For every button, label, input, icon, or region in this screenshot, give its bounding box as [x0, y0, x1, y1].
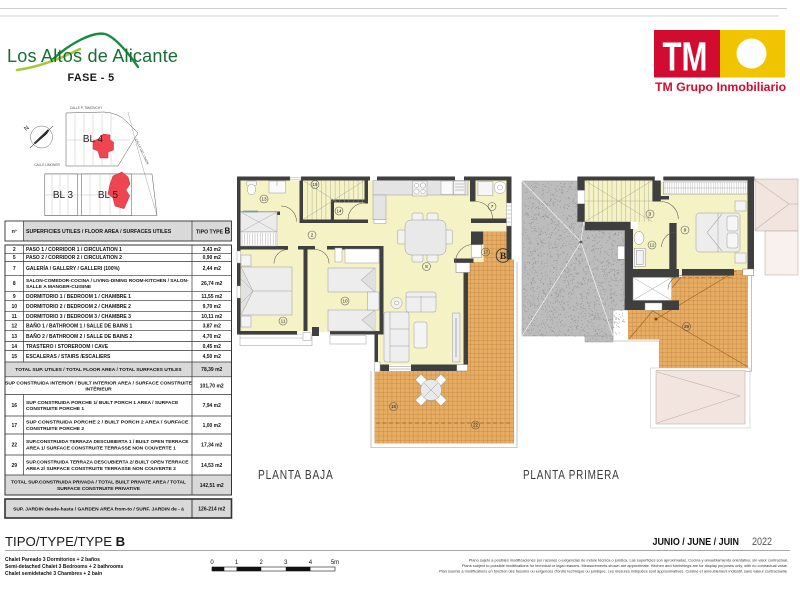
svg-text:BL 5: BL 5	[98, 190, 119, 201]
svg-text:SUP.CONSTRUIDA TERRAZA DESCUB: SUP.CONSTRUIDA TERRAZA DESCUBIERTA 2/ BU…	[26, 460, 189, 466]
svg-text:Plano sujeto a posibles modifi: Plano sujeto a posibles modificaciones p…	[469, 558, 788, 563]
svg-text:TM: TM	[663, 33, 708, 79]
svg-text:5: 5	[13, 255, 16, 261]
svg-text:ESCALERAS / STAIRS /ESCALIERS: ESCALERAS / STAIRS /ESCALIERS	[26, 354, 111, 360]
svg-text:SALLE A MANGER-CUISINE: SALLE A MANGER-CUISINE	[26, 284, 92, 290]
svg-text:14: 14	[11, 344, 17, 350]
svg-text:13: 13	[261, 197, 267, 202]
svg-text:13: 13	[11, 334, 17, 340]
svg-text:SUP.CONSTRUIDA TERRAZA DESCUB: SUP.CONSTRUIDA TERRAZA DESCUBIERTA 1 / B…	[26, 439, 189, 445]
svg-text:SURFACE CONSTRUITE PRIVATIVE: SURFACE CONSTRUITE PRIVATIVE	[57, 486, 141, 492]
svg-text:CALLE P. TAMONCHY: CALLE P. TAMONCHY	[70, 106, 103, 110]
svg-text:AREA 2/ SURFACE CONSTRUITE TE: AREA 2/ SURFACE CONSTRUITE TERRASSE NON …	[26, 466, 176, 472]
svg-text:PLANTA BAJA: PLANTA BAJA	[258, 469, 334, 482]
svg-text:7: 7	[491, 204, 494, 209]
svg-text:PASO 2 / CORRIDOR 2 / CIRCULAT: PASO 2 / CORRIDOR 2 / CIRCULATION 2	[26, 255, 122, 261]
svg-text:4: 4	[309, 560, 313, 566]
svg-text:142,51 m2: 142,51 m2	[200, 483, 224, 489]
svg-text:9,70 m2: 9,70 m2	[203, 304, 222, 310]
svg-text:15: 15	[11, 354, 17, 360]
svg-text:0: 0	[210, 560, 214, 566]
svg-text:TOTAL SUP. UTILES / TOTAL FLOO: TOTAL SUP. UTILES / TOTAL FLOOR AREA / T…	[15, 367, 182, 373]
svg-text:SUP CONSTRUIDA PORCHE 1/ BUILT: SUP CONSTRUIDA PORCHE 1/ BUILT PORCH 1 A…	[26, 400, 179, 406]
svg-text:SUP. JARDIN desde-hasta / GARD: SUP. JARDIN desde-hasta / GARDEN AREA fr…	[13, 507, 184, 513]
svg-text:5m: 5m	[331, 560, 339, 566]
svg-text:11: 11	[12, 314, 18, 320]
svg-text:8: 8	[13, 281, 16, 287]
svg-text:SUP CONSTRUIDA INTERIOR / BUIL: SUP CONSTRUIDA INTERIOR / BUILT INTERIOR…	[5, 380, 192, 386]
svg-text:Chalet semidetaché 3 Chambres: Chalet semidetaché 3 Chambres + 2 bain	[5, 571, 102, 577]
svg-text:29: 29	[684, 324, 690, 329]
svg-text:7: 7	[13, 266, 16, 272]
svg-text:12: 12	[11, 324, 17, 330]
svg-text:SUP CONSTRUIDA PORCHE 2 / BUIL: SUP CONSTRUIDA PORCHE 2 / BUILT PORCH 2 …	[26, 420, 189, 426]
svg-text:TOTAL SUP.CONSTRUIDA PRIVADA /: TOTAL SUP.CONSTRUIDA PRIVADA / TOTAL BUI…	[11, 480, 186, 486]
svg-text:9: 9	[13, 294, 16, 300]
svg-text:Semi-detached Chalet 3 Bedroom: Semi-detached Chalet 3 Bedrooms + 2 bath…	[5, 564, 123, 570]
svg-text:2,44 m2: 2,44 m2	[203, 266, 222, 272]
svg-text:nº: nº	[12, 229, 17, 235]
svg-text:16: 16	[391, 404, 397, 409]
svg-text:17: 17	[483, 250, 489, 255]
svg-text:Chalet Pareado 3 Dormitorios +: Chalet Pareado 3 Dormitorios + 2 baños	[5, 557, 100, 563]
svg-text:SUPERFICIES UTILES / FLOOR ARE: SUPERFICIES UTILES / FLOOR AREA / SURFAC…	[26, 229, 172, 235]
svg-text:N: N	[23, 125, 30, 132]
svg-text:17,34 m2: 17,34 m2	[201, 442, 222, 448]
svg-text:B: B	[500, 252, 507, 262]
svg-text:FASE - 5: FASE - 5	[68, 72, 115, 84]
svg-text:CALLE DEL LIMON: CALLE DEL LIMON	[134, 138, 150, 166]
svg-text:4,70 m2: 4,70 m2	[203, 334, 222, 340]
svg-text:BL 4: BL 4	[83, 134, 104, 145]
svg-text:10: 10	[342, 299, 348, 304]
svg-text:22: 22	[473, 423, 479, 428]
svg-text:3: 3	[649, 212, 652, 217]
svg-text:2: 2	[260, 560, 264, 566]
svg-text:DORMITORIO 3 / BEDROOM 3 / CHA: DORMITORIO 3 / BEDROOM 3 / CHAMBRE 3	[26, 314, 131, 320]
svg-text:11,55 m2: 11,55 m2	[201, 294, 222, 300]
svg-text:12: 12	[649, 243, 655, 248]
svg-text:CONSTRUITE PORCHE 1: CONSTRUITE PORCHE 1	[26, 406, 84, 412]
svg-text:7,94 m2: 7,94 m2	[203, 403, 222, 409]
svg-text:3,87 m2: 3,87 m2	[203, 324, 222, 330]
svg-text:22: 22	[11, 442, 17, 448]
svg-text:10,11 m2: 10,11 m2	[201, 314, 222, 320]
svg-text:101,70 m2: 101,70 m2	[200, 383, 224, 389]
svg-text:15: 15	[312, 182, 318, 187]
svg-text:14,53 m2: 14,53 m2	[201, 463, 222, 469]
svg-text:JUNIO / JUNE / JUIN: JUNIO / JUNE / JUIN	[652, 536, 739, 548]
svg-text:DORMITORIO 2 / BEDROOM 2 / CHA: DORMITORIO 2 / BEDROOM 2 / CHAMBRE 2	[26, 304, 131, 310]
svg-text:78,39 m2: 78,39 m2	[201, 367, 222, 373]
svg-text:TIPO/TYPE/TYPE B: TIPO/TYPE/TYPE B	[5, 534, 125, 549]
svg-text:CALLE LIMONER: CALLE LIMONER	[34, 163, 60, 167]
svg-text:29: 29	[11, 463, 17, 469]
svg-text:Plans subject to possible modi: Plans subject to possible modifications …	[462, 563, 788, 568]
svg-text:0,45 m2: 0,45 m2	[203, 344, 222, 350]
svg-text:Los Altos de Alicante: Los Altos de Alicante	[7, 46, 178, 66]
svg-text:TRASTERO / STOREROOM / CAVE: TRASTERO / STOREROOM / CAVE	[26, 344, 109, 350]
svg-text:SALON-COMEDOR-COCINA / LIVING: SALON-COMEDOR-COCINA / LIVING-DINING ROO…	[26, 278, 189, 284]
svg-text:26,74 m2: 26,74 m2	[201, 281, 222, 287]
svg-text:DORMITORIO 1 / BEDROOM 1 / CHA: DORMITORIO 1 / BEDROOM 1 / CHAMBRE 1	[26, 294, 131, 300]
svg-text:16: 16	[11, 403, 17, 409]
svg-text:3: 3	[284, 560, 288, 566]
svg-text:3,43 m2: 3,43 m2	[203, 247, 222, 253]
svg-text:BAÑO 2 / BATHROOM 2 / SALLE DE: BAÑO 2 / BATHROOM 2 / SALLE DE BAINS 2	[26, 333, 133, 340]
svg-text:2: 2	[13, 247, 16, 253]
svg-text:8: 8	[425, 264, 428, 269]
svg-text:0,90 m2: 0,90 m2	[203, 255, 222, 261]
svg-text:AREA 1/ SURFACE CONSTRUITE TE: AREA 1/ SURFACE CONSTRUITE TERRASSE NON …	[26, 445, 176, 451]
svg-text:9: 9	[684, 228, 687, 233]
svg-text:2022: 2022	[752, 536, 772, 548]
svg-text:CONSTRUITE PORCHE 2: CONSTRUITE PORCHE 2	[26, 426, 84, 432]
svg-text:10: 10	[11, 304, 17, 310]
svg-text:PASO 1 / CORRIDOR 1 / CIRCULAT: PASO 1 / CORRIDOR 1 / CIRCULATION 1	[26, 247, 122, 253]
svg-text:4,50 m2: 4,50 m2	[203, 354, 222, 360]
svg-text:2: 2	[311, 233, 314, 238]
svg-text:11: 11	[281, 319, 286, 324]
svg-text:Plan soumis à modifications en: Plan soumis à modifications en fonction …	[439, 569, 788, 574]
svg-text:1,00 m2: 1,00 m2	[203, 423, 222, 429]
svg-text:1: 1	[235, 560, 239, 566]
svg-text:126-214 m2: 126-214 m2	[198, 507, 225, 513]
svg-text:PLANTA PRIMERA: PLANTA PRIMERA	[523, 469, 620, 482]
svg-text:GALERÍA / GALLERY / GALLERI (1: GALERÍA / GALLERY / GALLERI (100%)	[26, 264, 120, 272]
svg-text:14: 14	[336, 209, 342, 214]
svg-text:BAÑO 1 / BATHROOM 1 / SALLE DE: BAÑO 1 / BATHROOM 1 / SALLE DE BAINS 1	[26, 323, 133, 330]
svg-text:BL 3: BL 3	[53, 190, 74, 201]
svg-text:17: 17	[11, 423, 17, 429]
svg-text:TM Grupo Inmobiliario: TM Grupo Inmobiliario	[655, 80, 787, 94]
